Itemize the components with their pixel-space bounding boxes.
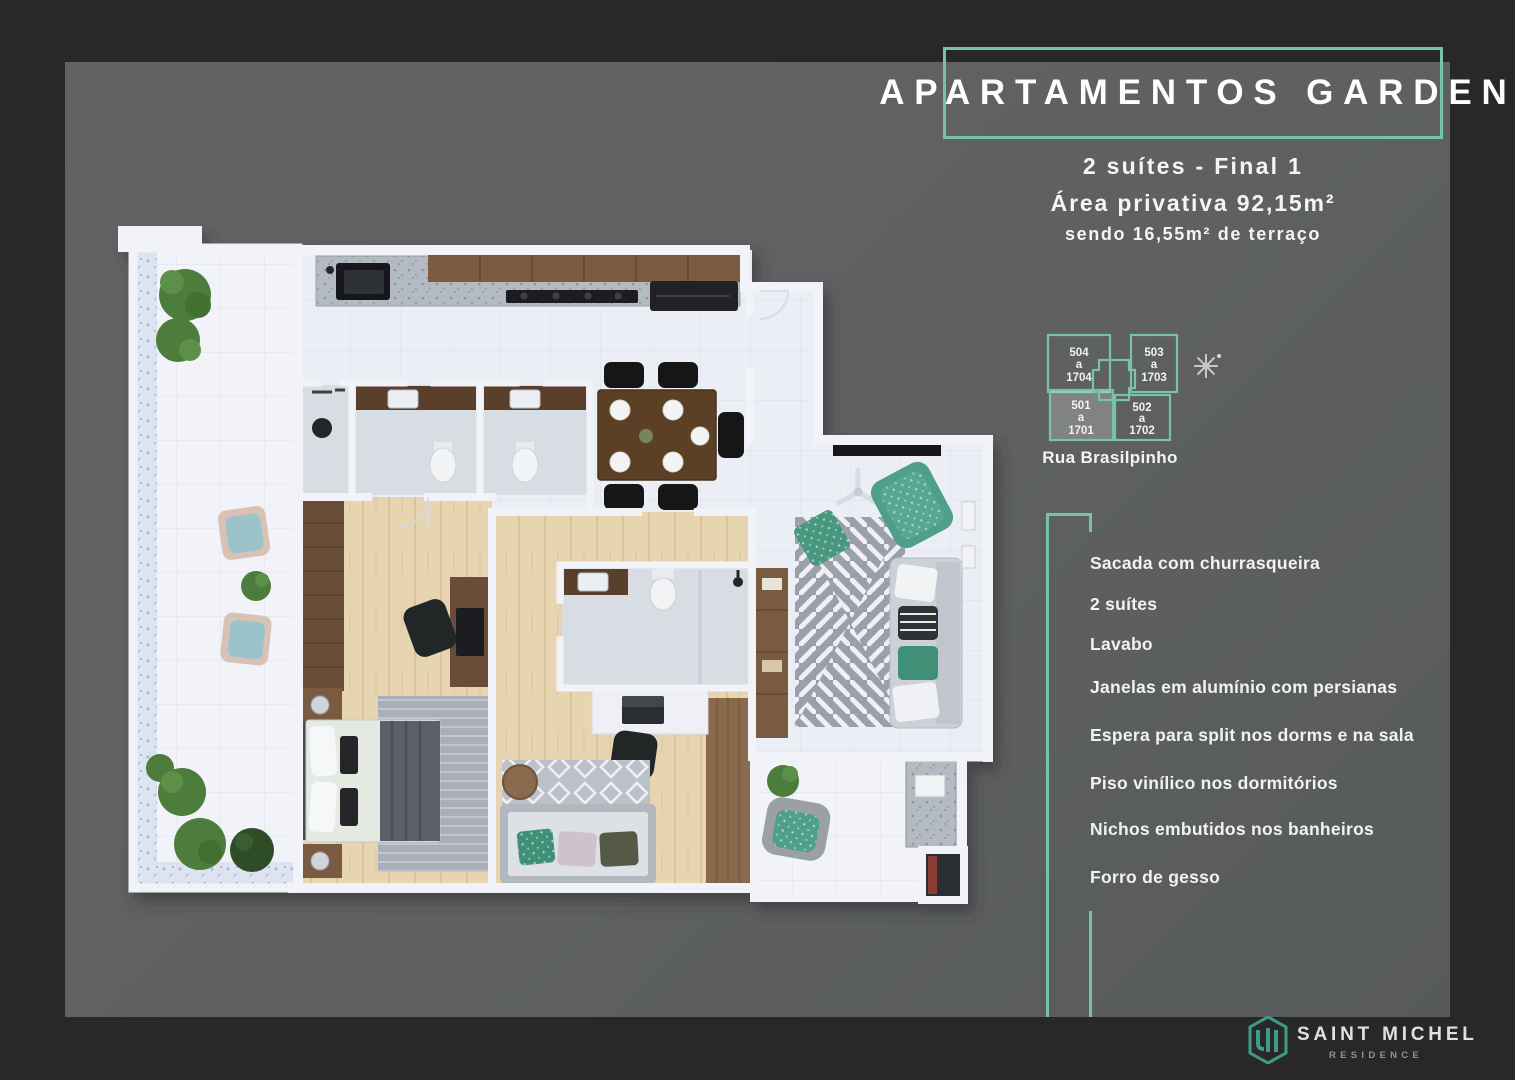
- brand-name: SAINT MICHEL: [1297, 1024, 1478, 1046]
- feature-item: Piso vinílico nos dormitórios: [1090, 773, 1338, 794]
- saint-michel-building-icon: [1248, 1016, 1288, 1064]
- svg-text:1703: 1703: [1141, 372, 1167, 384]
- svg-text:a: a: [1078, 412, 1085, 424]
- svg-text:1704: 1704: [1066, 372, 1092, 384]
- feature-bracket-top: [1046, 513, 1092, 516]
- svg-text:1702: 1702: [1129, 425, 1155, 437]
- feature-item: Lavabo: [1090, 634, 1153, 655]
- feature-item: 2 suítes: [1090, 594, 1157, 615]
- unit-box-502: 502 a 1702: [1115, 395, 1170, 440]
- feature-item: Sacada com churrasqueira: [1090, 553, 1320, 574]
- feature-item: Nichos embutidos nos banheiros: [1090, 819, 1374, 840]
- unit-box-501-highlighted: 501 a 1701: [1050, 390, 1113, 440]
- svg-text:a: a: [1151, 359, 1158, 371]
- brand-subname: RESIDENCE: [1297, 1050, 1455, 1061]
- svg-text:504: 504: [1069, 347, 1089, 359]
- feature-bracket-line: [1046, 513, 1049, 1017]
- feature-item: Espera para split nos dorms e na sala: [1090, 725, 1414, 746]
- feature-item: Forro de gesso: [1090, 867, 1220, 888]
- street-label: Rua Brasilpinho: [1042, 448, 1177, 467]
- unit-box-504: 504 a 1704: [1048, 335, 1110, 392]
- feature-item: Janelas em alumínio com persianas: [1090, 677, 1397, 698]
- svg-text:503: 503: [1144, 347, 1163, 359]
- brochure-page: { "palette": { "accent_teal": "#79c2aa",…: [0, 0, 1515, 1080]
- svg-text:501: 501: [1071, 400, 1091, 412]
- feature-bracket-second-line: [1089, 911, 1092, 1017]
- svg-text:a: a: [1076, 359, 1083, 371]
- unit-location-map: 504 a 1704 503 a 1703 501 a 1701 502 a 1…: [0, 0, 1515, 1080]
- svg-text:a: a: [1139, 413, 1146, 425]
- compass-rose-icon: [1194, 354, 1221, 378]
- unit-box-503: 503 a 1703: [1131, 335, 1177, 392]
- svg-text:1701: 1701: [1068, 425, 1094, 437]
- feature-bracket-tick: [1089, 513, 1092, 532]
- brand-logo: SAINT MICHEL RESIDENCE: [1248, 1016, 1468, 1068]
